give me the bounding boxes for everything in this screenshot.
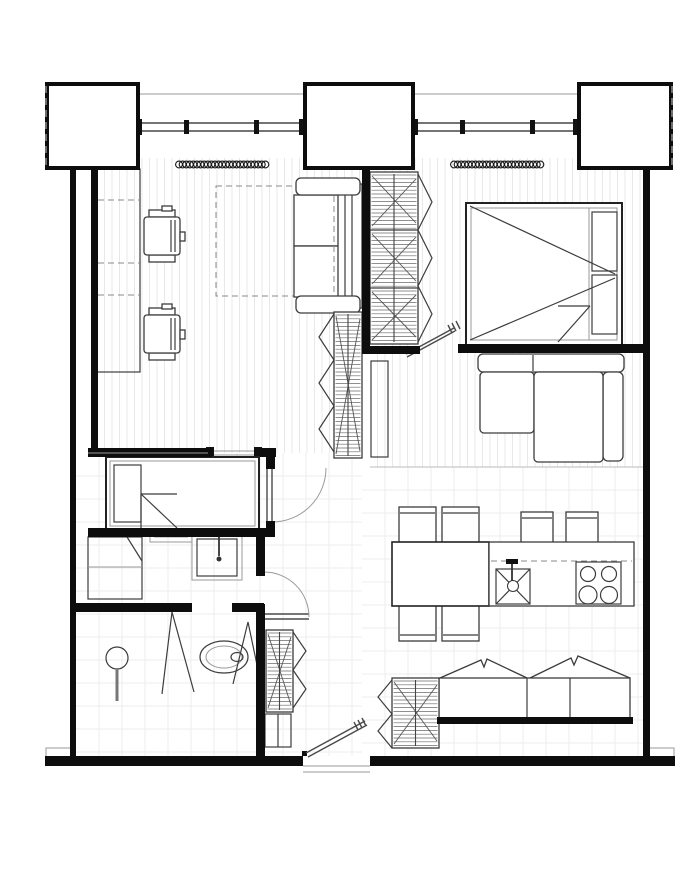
corner-sofa	[478, 354, 624, 462]
bedroom	[370, 172, 624, 462]
shower-screen-door	[162, 612, 194, 694]
wardrobe-living	[319, 312, 362, 458]
window-mullion	[254, 120, 259, 134]
door-hinge	[302, 751, 307, 756]
bar-stool	[566, 512, 598, 543]
wardrobe-kitchen	[378, 678, 439, 748]
shower-drain-icon	[106, 647, 128, 669]
shower-wc	[106, 612, 261, 701]
sofa-armrest	[296, 178, 360, 195]
chair-headrest	[162, 206, 172, 211]
bed-frame	[106, 457, 259, 530]
two-seat-sofa	[294, 178, 362, 313]
chair-headrest	[162, 304, 172, 309]
inner-wall-left-lining	[91, 168, 98, 454]
chair-tab	[180, 232, 185, 241]
outer-wall-bottom-right	[370, 756, 675, 766]
bench-cushion	[440, 659, 527, 678]
chair-tab	[180, 330, 185, 339]
wall-bathroom-east	[256, 528, 265, 576]
dining-table	[392, 542, 489, 606]
pillar-middle	[305, 84, 413, 168]
wall-living-bedroom	[362, 168, 370, 354]
office-chair	[144, 206, 185, 262]
door-swing-arc	[264, 572, 309, 617]
dining-chair	[442, 507, 479, 544]
window-mullion	[184, 120, 189, 134]
wall-kids-room-east	[266, 457, 275, 469]
wall-step-line	[650, 748, 674, 756]
window-left	[136, 119, 305, 135]
window-right	[412, 119, 579, 135]
wardrobe-doors-zigzag	[293, 632, 306, 708]
built-in-desk	[97, 169, 140, 372]
sofa-back	[478, 354, 624, 372]
wall-bedroom-south-left	[362, 346, 420, 354]
sofa-back	[338, 184, 362, 308]
floor-plan-drawing	[0, 0, 700, 891]
dining-chair	[399, 507, 436, 544]
wall-step-line	[46, 748, 70, 756]
chair-armrest	[149, 353, 175, 360]
washbasin	[192, 530, 242, 580]
wall-wc-east	[256, 604, 265, 758]
sofa-side	[603, 372, 623, 461]
faucet-icon	[506, 559, 518, 564]
floor-plan-canvas	[0, 0, 700, 891]
single-bed	[106, 457, 259, 530]
kids-room	[106, 447, 262, 530]
sofa-cushion	[294, 246, 340, 297]
wall-kids-room-corner	[260, 448, 276, 457]
wardrobe-hall	[266, 630, 306, 712]
entry-door	[302, 718, 370, 772]
outer-wall-left	[70, 168, 76, 758]
sink-drain	[508, 581, 519, 592]
dining-chair	[399, 604, 436, 641]
bench-sofa	[439, 656, 630, 718]
wall-bedroom-south	[458, 344, 648, 353]
stool-seat	[566, 512, 598, 543]
window-mullion	[460, 120, 465, 134]
sofa-armrest	[296, 296, 360, 313]
bar-stool	[521, 512, 553, 543]
sofa-cushion	[294, 195, 340, 246]
chair-armrest	[149, 255, 175, 262]
faucet-drop	[217, 557, 222, 562]
kitchen-counter	[489, 542, 634, 606]
bathroom	[88, 530, 242, 599]
double-bed	[466, 203, 622, 345]
dining-chair	[442, 604, 479, 641]
outer-wall-right	[643, 168, 650, 758]
bathroom-door	[264, 572, 309, 619]
wall-bathroom-north	[88, 528, 275, 537]
wall-wc-north	[76, 603, 192, 612]
toilet-icon	[200, 641, 248, 673]
sofa-seat	[534, 372, 603, 462]
living-room	[97, 169, 388, 458]
wall-kitchen-bench	[437, 717, 633, 724]
washer-door-line	[127, 537, 142, 561]
sofa-chaise	[480, 372, 534, 433]
wardrobe-doors-zigzag	[319, 314, 334, 452]
stool-seat	[521, 512, 553, 543]
bench-seat	[439, 678, 630, 718]
bed-frame	[466, 203, 622, 345]
pillar-right	[579, 84, 671, 168]
office-chair	[144, 304, 185, 360]
pillar-left	[47, 84, 138, 168]
rug	[216, 186, 302, 296]
window-mullion	[530, 120, 535, 134]
